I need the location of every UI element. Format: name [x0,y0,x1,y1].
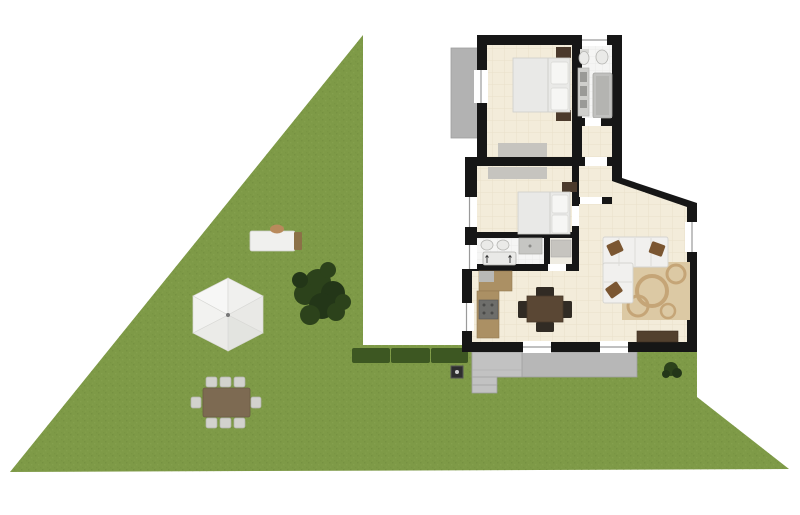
window [582,34,607,46]
tv-console [637,331,678,342]
bidet [596,50,608,64]
lounger-wood-end [294,232,302,250]
dining-table [527,296,563,322]
window [462,197,477,227]
chair [234,418,245,428]
wardrobe [498,143,547,157]
door-opening [585,118,601,126]
stove [479,300,498,319]
corner-sofa-side [603,263,633,303]
toilet [579,52,589,65]
chair [234,377,245,387]
burner [483,312,486,315]
terrace-left [472,352,522,377]
burner [491,304,494,307]
pillow [551,88,568,110]
bathtub-basin [596,76,609,115]
wardrobe [488,167,547,179]
chair [206,377,217,387]
pillow [551,62,568,84]
window [462,245,477,269]
floor-plan-canvas [0,0,800,515]
door-opening [548,264,566,271]
sink [481,240,493,250]
chair [518,301,528,318]
window [523,341,551,353]
chair [536,287,554,297]
door-opening [585,157,607,166]
sink [497,240,509,250]
chair [206,418,217,428]
pillow [552,195,568,213]
floor-plan-image [0,0,800,515]
garden-table [203,388,250,417]
window [600,341,628,353]
counter-item [580,100,587,108]
chair [220,418,231,428]
lounger-pillow [270,225,284,234]
parasol-pole [226,313,230,317]
shower-drain [529,245,532,248]
door-opening [572,206,579,226]
pillow [552,215,568,233]
counter-item [580,86,587,96]
chair [562,301,572,318]
hedge-segment [352,348,390,363]
window [685,222,699,252]
window [459,303,474,331]
bedside-table [556,47,571,58]
hedge-segment [391,348,430,363]
door-opening [580,197,602,204]
well [451,366,463,378]
burner [483,304,486,307]
chair [536,322,554,332]
window [474,70,488,103]
bathtub [483,252,516,265]
chair [191,397,201,408]
burner [491,312,494,315]
chair [220,377,231,387]
kitchen-sink [479,271,494,282]
bedside-table [562,182,577,192]
hedge-row [352,348,468,363]
closet-storage-unit [551,240,571,257]
chair [251,397,261,408]
counter-item [580,72,587,82]
